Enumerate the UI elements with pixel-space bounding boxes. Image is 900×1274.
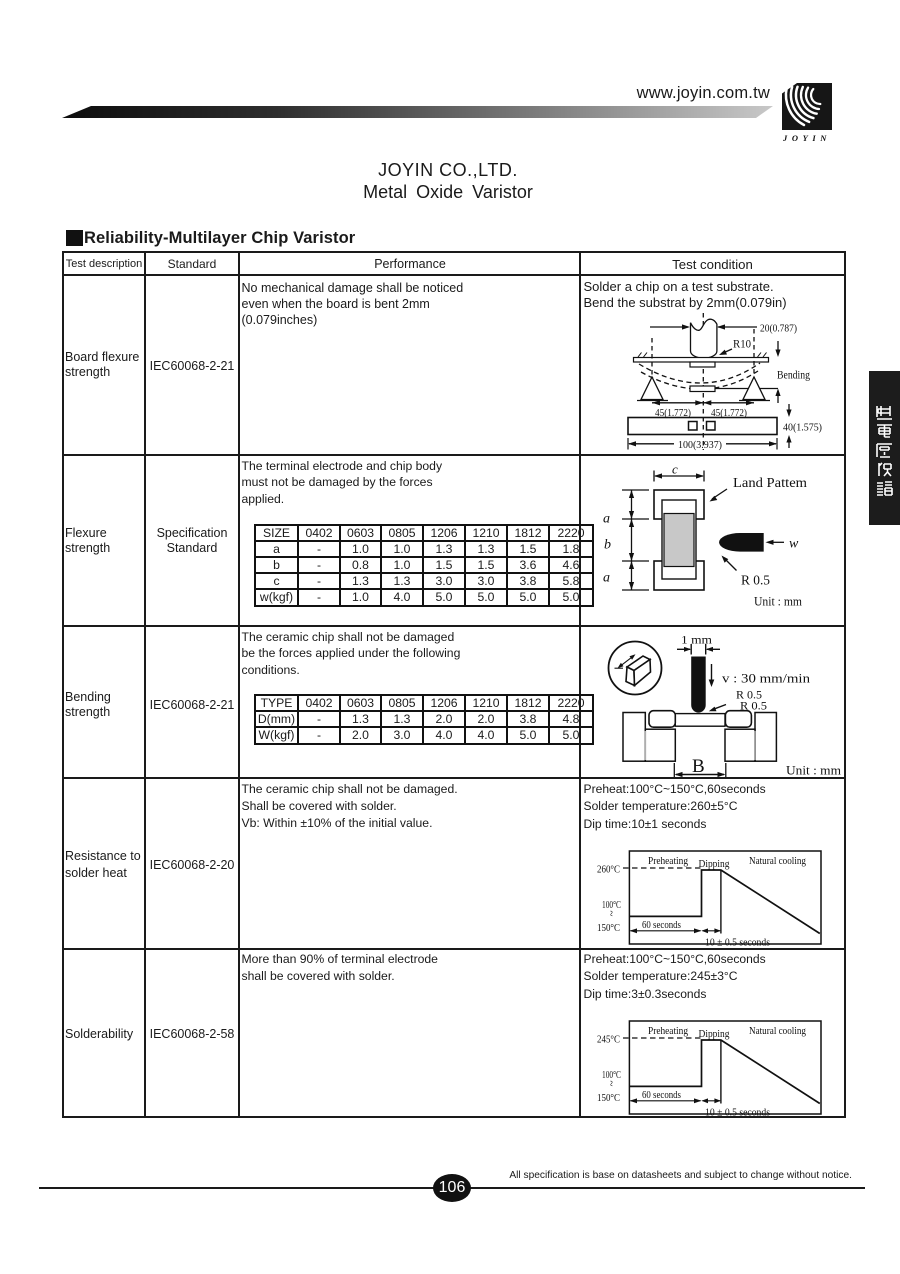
svg-text:Preheating: Preheating <box>648 1025 688 1037</box>
svg-text:Unit : mm: Unit : mm <box>786 764 841 778</box>
svg-text:a: a <box>603 512 610 527</box>
svg-text:R 0.5: R 0.5 <box>741 573 770 588</box>
svg-text:60 seconds: 60 seconds <box>642 920 681 931</box>
svg-text:Bending: Bending <box>777 370 810 382</box>
svg-text:1 mm: 1 mm <box>681 633 713 647</box>
svg-text:Land Pattem: Land Pattem <box>733 475 808 490</box>
svg-text:40(1.575): 40(1.575) <box>783 422 822 434</box>
svg-text:c: c <box>672 462 678 477</box>
svg-text:45(1.772): 45(1.772) <box>655 407 691 419</box>
svg-text:Dipping: Dipping <box>699 1028 730 1040</box>
svg-text:Dipping: Dipping <box>699 858 730 870</box>
svg-text:150°C: 150°C <box>597 1092 620 1104</box>
svg-text:Preheating: Preheating <box>648 855 688 867</box>
svg-text:b: b <box>604 538 611 553</box>
svg-text:100(3.937): 100(3.937) <box>678 439 722 451</box>
svg-text:R10: R10 <box>733 339 751 351</box>
svg-text:~: ~ <box>605 1081 617 1087</box>
svg-text:JOYIN: JOYIN <box>782 133 831 143</box>
svg-text:150°C: 150°C <box>597 922 620 934</box>
svg-text:a: a <box>603 571 610 586</box>
svg-text:10 ± 0.5 seconds: 10 ± 0.5 seconds <box>705 937 770 948</box>
svg-text:w: w <box>789 537 799 552</box>
svg-text:~: ~ <box>605 911 617 917</box>
svg-text:Natural cooling: Natural cooling <box>749 855 806 867</box>
svg-text:Natural cooling: Natural cooling <box>749 1025 806 1037</box>
svg-text:245°C: 245°C <box>597 1034 620 1046</box>
svg-text:60 seconds: 60 seconds <box>642 1090 681 1101</box>
svg-text:B: B <box>692 756 705 777</box>
svg-text:20(0.787): 20(0.787) <box>760 323 797 335</box>
svg-text:260°C: 260°C <box>597 864 620 876</box>
svg-text:v : 30 mm/min: v : 30 mm/min <box>722 671 811 686</box>
svg-text:45(1.772): 45(1.772) <box>711 407 747 419</box>
svg-text:10 ± 0.5 seconds: 10 ± 0.5 seconds <box>705 1107 770 1118</box>
svg-text:100°C: 100°C <box>602 1069 621 1081</box>
svg-text:100°C: 100°C <box>602 899 621 911</box>
svg-text:R 0.5: R 0.5 <box>740 699 767 713</box>
svg-text:Unit : mm: Unit : mm <box>754 595 802 609</box>
